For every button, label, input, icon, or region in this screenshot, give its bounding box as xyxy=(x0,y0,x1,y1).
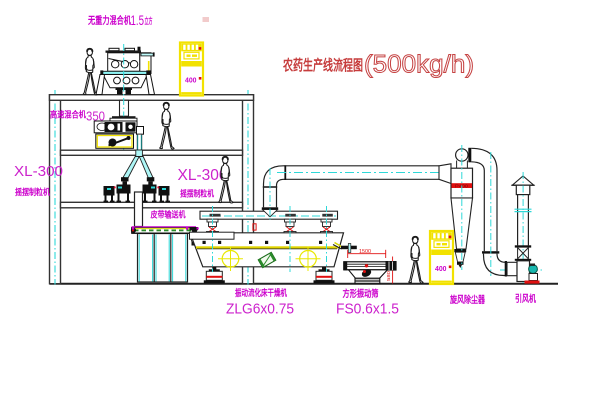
svg-text:XL-300: XL-300 xyxy=(178,167,228,184)
svg-text:(500kg/h): (500kg/h) xyxy=(364,51,474,79)
svg-text:FS0.6x1.5: FS0.6x1.5 xyxy=(336,301,399,318)
svg-text:立方: 立方 xyxy=(145,16,153,26)
svg-text:高速混合机: 高速混合机 xyxy=(50,110,86,120)
svg-text:1.5: 1.5 xyxy=(131,12,145,28)
svg-text:无重力混合机: 无重力混合机 xyxy=(87,14,131,27)
svg-text:振动流化床干燥机: 振动流化床干燥机 xyxy=(235,287,287,298)
svg-text:1500: 1500 xyxy=(359,249,371,255)
svg-text:摇摆制粒机: 摇摆制粒机 xyxy=(180,189,214,199)
svg-text:农药生产线流程图: 农药生产线流程图 xyxy=(282,57,363,75)
svg-text:引风机: 引风机 xyxy=(515,293,536,305)
svg-text:摇摆制粒机: 摇摆制粒机 xyxy=(15,187,50,197)
svg-text:ZLG6x0.75: ZLG6x0.75 xyxy=(226,301,294,318)
svg-text:皮带输送机: 皮带输送机 xyxy=(150,210,186,220)
svg-text:方形振动筛: 方形振动筛 xyxy=(343,288,379,300)
svg-text:580: 580 xyxy=(386,270,391,281)
svg-text:XL-300: XL-300 xyxy=(14,163,63,180)
svg-text:旋风除尘器: 旋风除尘器 xyxy=(449,294,485,306)
